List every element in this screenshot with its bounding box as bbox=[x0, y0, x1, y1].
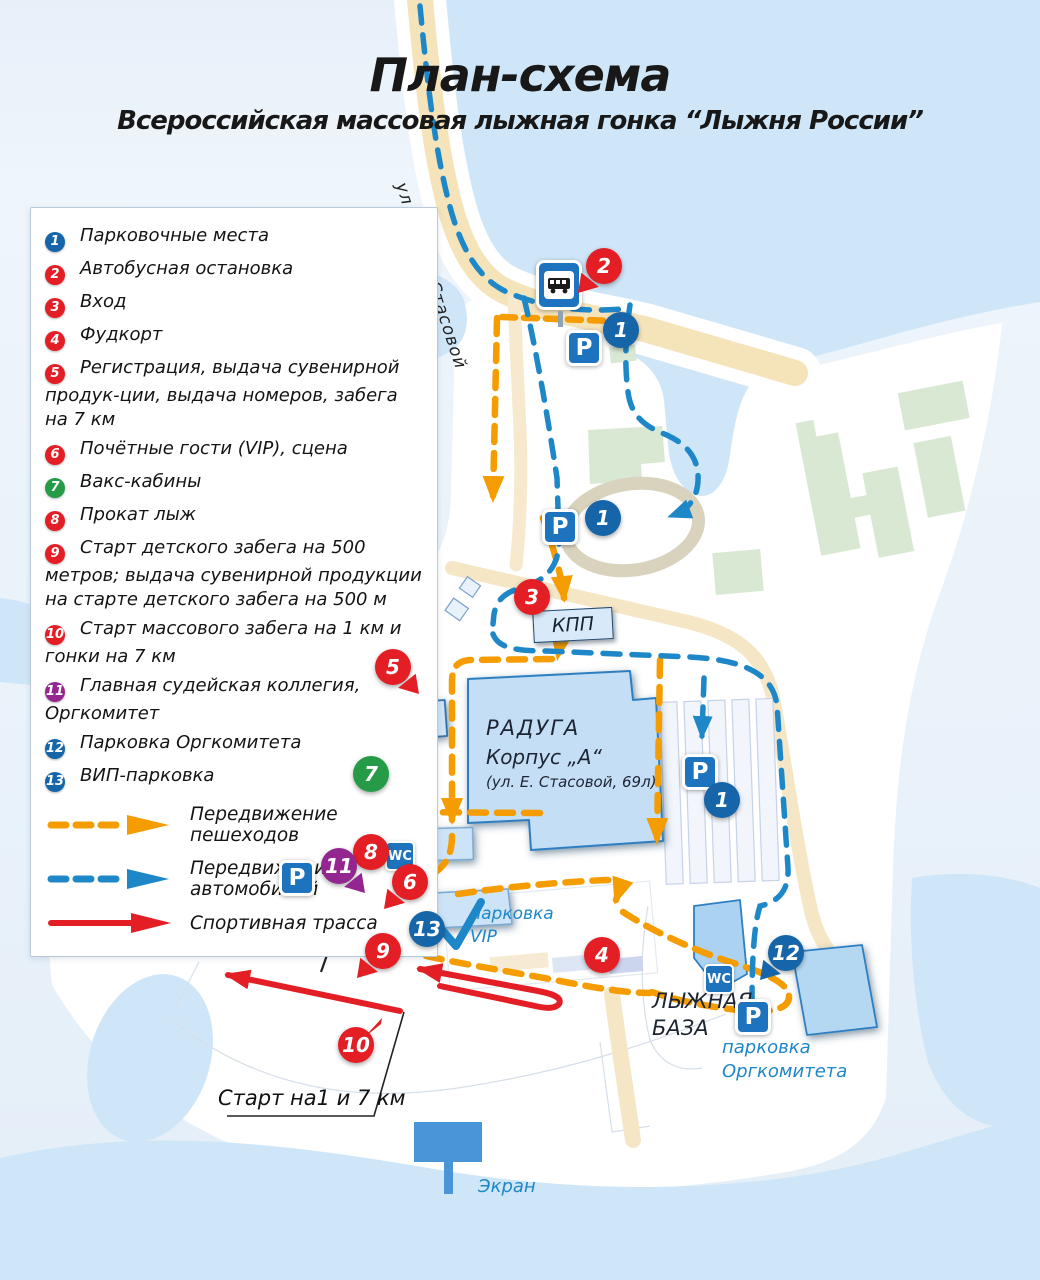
bus-icon bbox=[543, 270, 575, 300]
legend-item: 2Автобусная остановка bbox=[31, 257, 429, 285]
blue-dashed-line-icon bbox=[47, 868, 172, 890]
legend-label: Вход bbox=[80, 291, 126, 312]
legend-badge: 11 bbox=[45, 682, 65, 702]
org-parking-label: парковка Оргкомитета bbox=[722, 1036, 847, 1084]
raduga-korpus: Корпус „А“ bbox=[486, 745, 657, 769]
parking-sign: P bbox=[542, 509, 578, 545]
legend-badge: 1 bbox=[45, 232, 65, 252]
legend-label: Парковочные места bbox=[80, 225, 269, 246]
legend-item: 6Почётные гости (VIP), сцена bbox=[31, 437, 429, 465]
marker-1-parking: 1 bbox=[603, 312, 639, 348]
org-parking-line1: парковка bbox=[722, 1036, 847, 1060]
org-parking-line2: Оргкомитета bbox=[722, 1060, 847, 1084]
screen-board bbox=[414, 1122, 482, 1162]
marker-7-wax-cabins: 7 bbox=[353, 756, 389, 792]
marker-1-parking: 1 bbox=[585, 500, 621, 536]
legend-label: Парковка Оргкомитета bbox=[80, 732, 301, 753]
vip-parking-line1: парковка bbox=[470, 903, 554, 926]
parking-sign: P bbox=[735, 999, 771, 1035]
legend-item: 1Парковочные места bbox=[31, 224, 429, 252]
legend-badge: 9 bbox=[45, 544, 65, 564]
page-title: План-схема bbox=[0, 48, 1040, 102]
vip-parking-label: парковка VIP bbox=[470, 903, 554, 949]
legend-route-track: Спортивная трасса bbox=[47, 912, 429, 934]
legend-item: 11Главная судейская коллегия, Оргкомитет bbox=[31, 674, 429, 726]
legend-label: Фудкорт bbox=[80, 324, 162, 345]
marker-2-bus-stop: 2 bbox=[586, 248, 622, 284]
org-parking-building bbox=[792, 945, 877, 1035]
marker-13-vip-parking: 13 bbox=[409, 911, 445, 947]
legend-label: Прокат лыж bbox=[80, 504, 196, 525]
vip-parking-line2: VIP bbox=[470, 926, 554, 949]
marker-4-foodcourt: 4 bbox=[584, 937, 620, 973]
legend-label: Регистрация, выдача сувенирной продук-ци… bbox=[45, 357, 399, 430]
parking-sign: P bbox=[279, 860, 315, 896]
marker-8-ski-rental: 8 bbox=[353, 834, 389, 870]
marker-3-entrance: 3 bbox=[514, 579, 550, 615]
bus-stop-sign bbox=[536, 260, 582, 310]
legend-badge: 8 bbox=[45, 511, 65, 531]
legend-badge: 6 bbox=[45, 445, 65, 465]
legend-badge: 12 bbox=[45, 739, 65, 759]
legend-item: 7Вакс-кабины bbox=[31, 470, 429, 498]
plan-schema-page: План-схема Всероссийская массовая лыжная… bbox=[0, 0, 1040, 1280]
legend-item: 4Фудкорт bbox=[31, 323, 429, 351]
screen-label: Экран bbox=[478, 1176, 536, 1197]
legend-item: 9Старт детского забега на 500 метров; вы… bbox=[31, 536, 429, 612]
raduga-address: (ул. Е. Стасовой, 69л) bbox=[486, 773, 657, 791]
page-subtitle: Всероссийская массовая лыжная гонка “Лыж… bbox=[0, 106, 1040, 136]
marker-1-parking: 1 bbox=[704, 782, 740, 818]
legend-label: Старт детского забега на 500 метров; выд… bbox=[45, 537, 422, 610]
orange-dashed-line-icon bbox=[47, 814, 172, 836]
marker-11-jury: 11 bbox=[321, 848, 357, 884]
raduga-label: РАДУГА Корпус „А“ (ул. Е. Стасовой, 69л) bbox=[486, 716, 657, 791]
legend-label: Вакс-кабины bbox=[80, 471, 201, 492]
legend-item: 10Старт массового забега на 1 км и гонки… bbox=[31, 617, 429, 669]
marker-5-registration: 5 bbox=[375, 649, 411, 685]
legend-label: Главная судейская коллегия, Оргкомитет bbox=[45, 675, 360, 724]
legend-item: 8Прокат лыж bbox=[31, 503, 429, 531]
legend-badge: 7 bbox=[45, 478, 65, 498]
red-solid-line-icon bbox=[47, 912, 172, 934]
legend-badge: 5 bbox=[45, 364, 65, 384]
screen-pole bbox=[444, 1162, 453, 1194]
legend-item: 5Регистрация, выдача сувенирной продук-ц… bbox=[31, 356, 429, 432]
legend-route-label: Спортивная трасса bbox=[190, 913, 378, 934]
marker-10-mass-start: 10 bbox=[338, 1027, 374, 1063]
legend-badge: 13 bbox=[45, 772, 65, 792]
legend-badge: 10 bbox=[45, 625, 65, 645]
marker-9-kids-start: 9 bbox=[365, 933, 401, 969]
legend-item: 12Парковка Оргкомитета bbox=[31, 731, 429, 759]
parking-sign: P bbox=[566, 330, 602, 366]
start-label: Старт на1 и 7 км bbox=[218, 1086, 406, 1110]
marker-12-org-parking: 12 bbox=[768, 935, 804, 971]
legend-label: ВИП-парковка bbox=[80, 765, 214, 786]
legend-item: 3Вход bbox=[31, 290, 429, 318]
legend-route-label: Передвижение пешеходов bbox=[190, 804, 429, 846]
legend-label: Автобусная остановка bbox=[80, 258, 293, 279]
legend-badge: 4 bbox=[45, 331, 65, 351]
raduga-name: РАДУГА bbox=[486, 716, 657, 740]
checkpoint-box: КПП bbox=[532, 607, 614, 643]
wc-sign: WC bbox=[704, 964, 734, 994]
legend-label: Почётные гости (VIP), сцена bbox=[80, 438, 348, 459]
legend-label: Старт массового забега на 1 км и гонки н… bbox=[45, 618, 402, 667]
marker-6-vip-stage: 6 bbox=[392, 864, 428, 900]
legend-badge: 3 bbox=[45, 298, 65, 318]
legend-badge: 2 bbox=[45, 265, 65, 285]
